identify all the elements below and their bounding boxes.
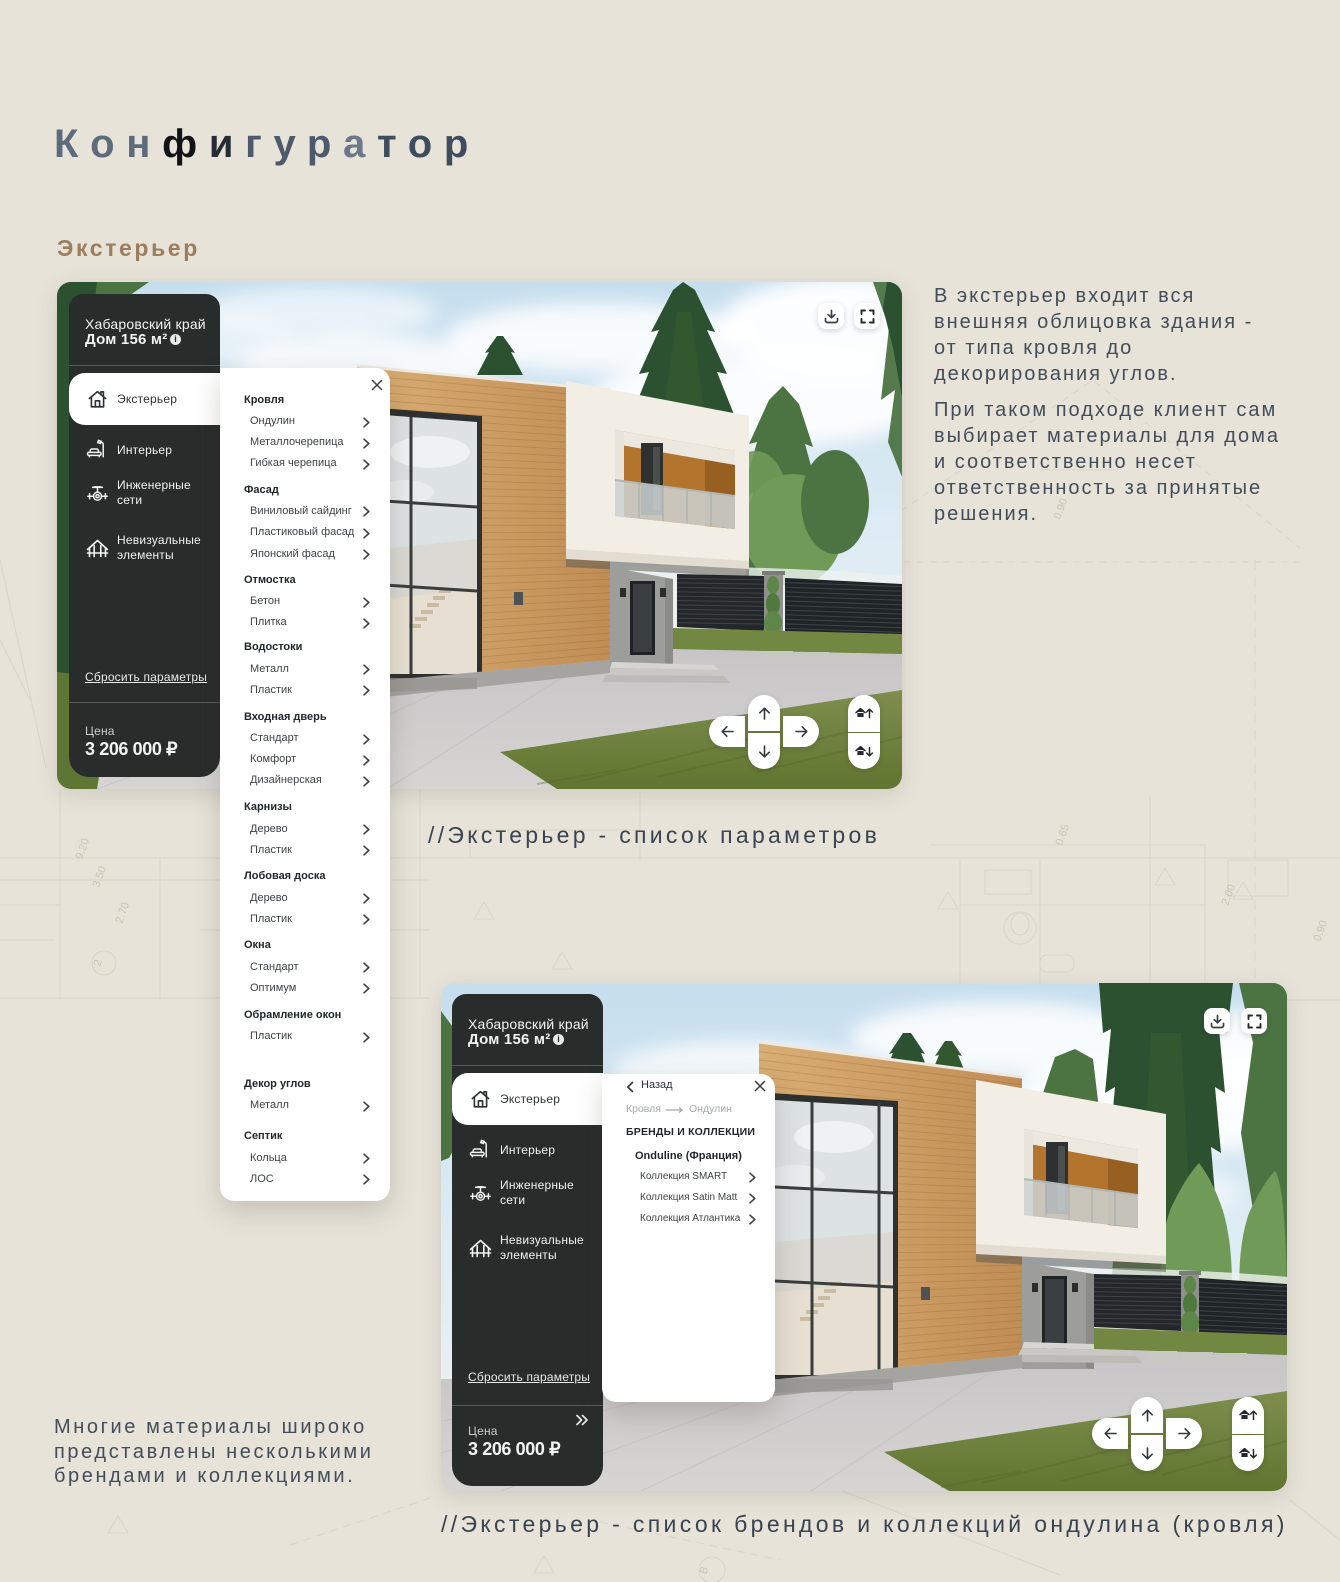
svg-text:0.90: 0.90	[1312, 919, 1331, 943]
svg-text:2: 2	[92, 958, 105, 968]
svg-text:2.70: 2.70	[114, 901, 133, 925]
svg-text:9.20: 9.20	[74, 837, 93, 861]
svg-text:3.50: 3.50	[91, 865, 110, 889]
svg-text:0.65: 0.65	[1054, 823, 1073, 847]
